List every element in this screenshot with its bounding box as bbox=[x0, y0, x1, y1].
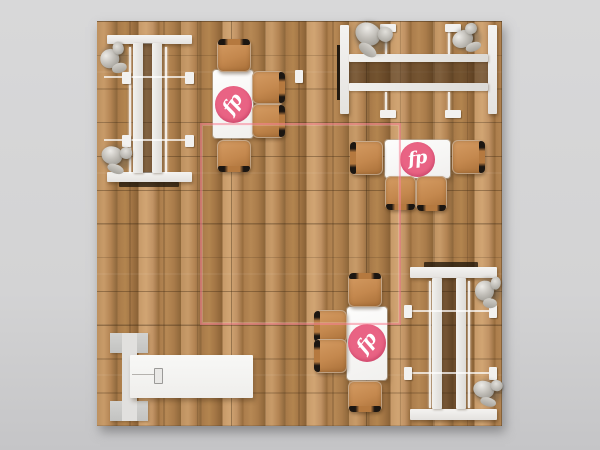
booth-render-stage: fpfpfp bbox=[0, 0, 600, 450]
person-figure bbox=[447, 18, 487, 57]
person-figure bbox=[345, 10, 400, 65]
person-figure bbox=[95, 38, 133, 78]
figure-head bbox=[490, 276, 502, 290]
figure-shadow bbox=[98, 141, 134, 174]
figure-shadow bbox=[450, 22, 485, 54]
person-figure bbox=[96, 137, 138, 177]
figure-head bbox=[464, 21, 479, 36]
figure-body bbox=[351, 17, 385, 50]
figure-body bbox=[99, 144, 125, 168]
figure-arm bbox=[356, 39, 379, 60]
figure-arm bbox=[479, 395, 497, 408]
figure-head bbox=[490, 379, 504, 393]
figure-head bbox=[118, 145, 133, 160]
figure-arm bbox=[106, 162, 125, 176]
figure-shadow bbox=[98, 42, 130, 74]
figure-body bbox=[98, 47, 121, 70]
figure-body bbox=[450, 28, 475, 51]
figure-arm bbox=[111, 61, 128, 74]
figure-body bbox=[474, 280, 494, 301]
figure-shadow bbox=[349, 15, 396, 61]
figures-layer bbox=[0, 0, 600, 450]
figure-arm bbox=[482, 297, 497, 308]
figure-arm bbox=[464, 40, 482, 54]
figure-shadow bbox=[475, 277, 503, 306]
person-figure bbox=[473, 273, 505, 309]
figure-head bbox=[375, 24, 395, 44]
figure-shadow bbox=[471, 376, 504, 406]
person-figure bbox=[469, 372, 508, 409]
figure-head bbox=[111, 40, 125, 55]
figure-body bbox=[472, 378, 496, 400]
